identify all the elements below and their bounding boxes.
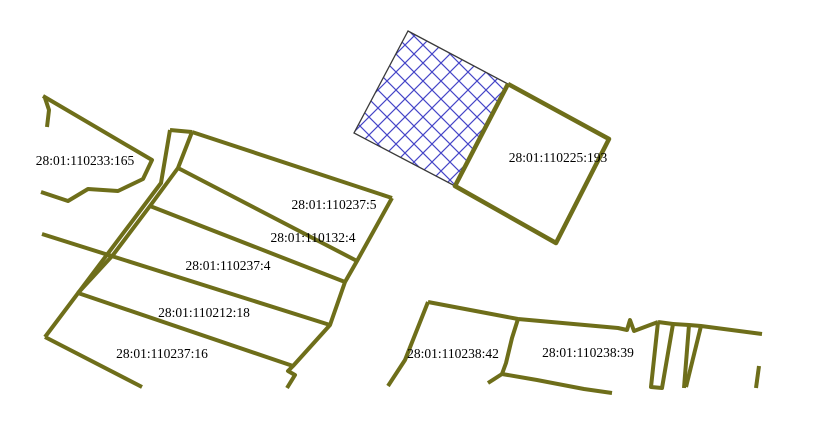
parcel-label-28-01-110233-165[interactable]: 28:01:110233:165 xyxy=(36,153,135,168)
hatched-selected-parcel[interactable] xyxy=(354,31,508,186)
parcel-label-28-01-110132-4[interactable]: 28:01:110132:4 xyxy=(270,230,355,245)
parcel-label-28-01-110237-5[interactable]: 28:01:110237:5 xyxy=(291,197,376,212)
parcel-label-28-01-110212-18[interactable]: 28:01:110212:18 xyxy=(158,305,250,320)
narrow-parcel-1-outline xyxy=(651,322,673,388)
map-viewport: 28:01:110233:16528:01:110237:528:01:1101… xyxy=(0,0,819,439)
parcel-label-28-01-110238-42[interactable]: 28:01:110238:42 xyxy=(407,346,499,361)
parcel-label-28-01-110225-193[interactable]: 28:01:110225:193 xyxy=(509,150,608,165)
parcel-110233-165-outline xyxy=(41,96,152,201)
east-north-edge xyxy=(673,324,762,334)
far-east-dangling-edge xyxy=(756,366,759,388)
parcel-label-28-01-110237-16[interactable]: 28:01:110237:16 xyxy=(116,346,208,361)
strip-boundary-237-5-132-4 xyxy=(178,168,357,261)
south-edge-238-block xyxy=(488,374,612,393)
cadastral-map-canvas[interactable]: 28:01:110233:16528:01:110237:528:01:1101… xyxy=(0,0,819,439)
parcel-label-28-01-110237-4[interactable]: 28:01:110237:4 xyxy=(185,258,270,273)
sliver-top-edge xyxy=(170,130,192,132)
block-south-dangling-edge xyxy=(45,337,142,387)
parcel-divider-42-39 xyxy=(502,319,518,374)
parcel-110238-42-west-edge xyxy=(388,302,428,386)
parcel-label-28-01-110238-39[interactable]: 28:01:110238:39 xyxy=(542,345,634,360)
parcel-110233-165-west-stub xyxy=(45,98,49,127)
parcel-110238-39-north-edge xyxy=(518,319,658,331)
parcel-110238-42-north-edge xyxy=(428,302,518,319)
strip-block-right-edge xyxy=(287,198,392,388)
strip-block-north-edge xyxy=(192,132,392,198)
